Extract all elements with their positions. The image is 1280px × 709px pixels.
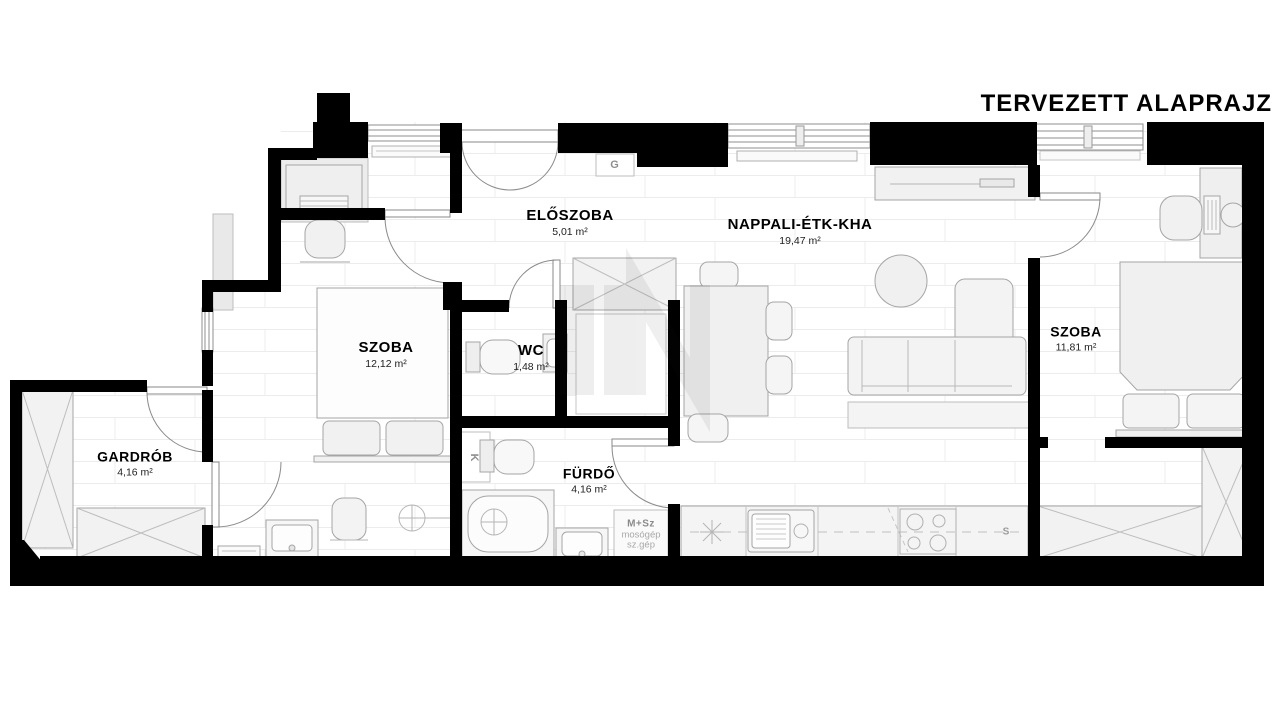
counter-section-label: S bbox=[1003, 527, 1010, 538]
room-area: 12,12 m² bbox=[359, 358, 414, 371]
room-label-szoba-bal: SZOBA 12,12 m² bbox=[359, 339, 414, 371]
kitchen-counter bbox=[681, 506, 1028, 558]
washer-line: sz.gép bbox=[621, 541, 660, 552]
room-area: 5,01 m² bbox=[526, 226, 613, 239]
room-area: 11,81 m² bbox=[1050, 341, 1102, 354]
room-name: WC bbox=[513, 342, 549, 361]
window-living bbox=[728, 124, 870, 161]
boiler-label: K bbox=[468, 454, 480, 463]
page-title: TERVEZETT ALAPRAJZ bbox=[981, 90, 1272, 118]
window-left-wall bbox=[202, 308, 213, 352]
room-label-szoba-jobb: SZOBA 11,81 m² bbox=[1050, 324, 1102, 355]
room-label-eloszoba: ELŐSZOBA 5,01 m² bbox=[526, 207, 613, 239]
room-area: 19,47 m² bbox=[728, 235, 873, 248]
room-area: 1,48 m² bbox=[513, 361, 549, 374]
washer-dryer-label: M+Sz mosógép sz.gép bbox=[621, 518, 660, 551]
washer-title: M+Sz bbox=[621, 518, 660, 530]
room-name: NAPPALI-ÉTK-KHA bbox=[728, 216, 873, 235]
room-name: SZOBA bbox=[359, 339, 414, 358]
gas-meter-label: G bbox=[610, 159, 620, 171]
window-right-room bbox=[1035, 124, 1143, 150]
room-name: SZOBA bbox=[1050, 324, 1102, 342]
room-name: FÜRDŐ bbox=[563, 466, 615, 484]
room-area: 4,16 m² bbox=[563, 483, 615, 496]
room-name: ELŐSZOBA bbox=[526, 207, 613, 226]
room-label-gardrob: GARDRÓB 4,16 m² bbox=[97, 449, 173, 480]
room-label-wc: WC 1,48 m² bbox=[513, 342, 549, 374]
room-label-nappali: NAPPALI-ÉTK-KHA 19,47 m² bbox=[728, 216, 873, 248]
room-area: 4,16 m² bbox=[97, 466, 173, 479]
room-label-furdo: FÜRDŐ 4,16 m² bbox=[563, 466, 615, 497]
room-name: GARDRÓB bbox=[97, 449, 173, 467]
floor-plan-page: TERVEZETT ALAPRAJZ ELŐSZOBA 5,01 m² NAPP… bbox=[0, 0, 1280, 709]
